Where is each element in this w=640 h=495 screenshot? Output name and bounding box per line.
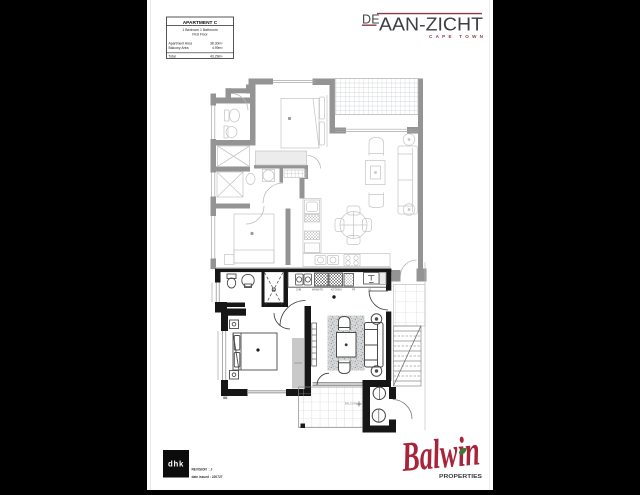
svg-text:APARTMENT C: APARTMENT C <box>183 20 218 26</box>
svg-text:WASH/TD: WASH/TD <box>312 289 323 292</box>
svg-text:Balcony Area: Balcony Area <box>169 46 189 50</box>
svg-text:BALCONY: BALCONY <box>345 402 358 406</box>
svg-text:REVISION : J: REVISION : J <box>192 468 213 472</box>
svg-text:dhk: dhk <box>168 460 184 469</box>
svg-text:Apartment Area: Apartment Area <box>169 42 193 46</box>
svg-text:DE: DE <box>362 12 380 26</box>
svg-text:4.99m²: 4.99m² <box>212 46 223 50</box>
svg-text:First Floor: First Floor <box>192 33 208 37</box>
svg-text:KITCHEN: KITCHEN <box>331 289 342 292</box>
svg-text:CHB: CHB <box>296 289 301 292</box>
svg-text:AAN-ZICHT: AAN-ZICHT <box>379 13 483 34</box>
svg-text:1 Bedroom 1 Bathroom: 1 Bedroom 1 Bathroom <box>182 28 217 32</box>
svg-text:date issued : 220727: date issued : 220727 <box>192 475 223 479</box>
svg-text:38.30m²: 38.30m² <box>210 42 223 46</box>
svg-text:FR: FR <box>352 289 355 292</box>
svg-text:43.29m²: 43.29m² <box>210 55 223 59</box>
svg-text:Total: Total <box>169 55 176 59</box>
svg-text:PROPERTIES: PROPERTIES <box>439 474 483 480</box>
